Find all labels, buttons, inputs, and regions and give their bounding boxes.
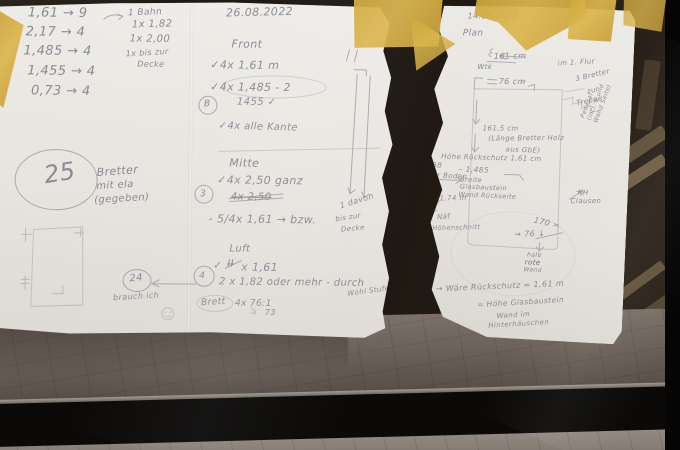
conversion-line: 2,17 → 4 (26, 25, 86, 39)
mitte-line: ✓4x 2,50 ganz (217, 174, 303, 186)
conversion-line: 1,61 → 9 (28, 6, 88, 20)
window-frame-right (665, 0, 680, 450)
front-line: 1455 ✓ (237, 98, 277, 108)
plan-heading: Plan (463, 29, 484, 38)
bahn-line: 1x 1,82 (132, 19, 173, 30)
total-24: 24 (129, 273, 143, 284)
conversion-line: 1,455 → 4 (27, 64, 95, 78)
kh-label: KH (578, 190, 589, 197)
brett-label: Brett (201, 298, 226, 308)
front-line: ✓4x 1,61 m (210, 59, 279, 71)
conversion-line: 0,73 → 4 (31, 84, 91, 98)
bahn-line: Decke (137, 61, 164, 69)
bretter-note: Bretter (96, 164, 138, 178)
mitte-line: - 5/4x 1,61 → bzw. (209, 213, 317, 225)
mitte-marker: 3 (200, 190, 206, 199)
luft-crossed-value: II (227, 259, 234, 269)
naef-note: Höhenschnitt (432, 224, 480, 232)
shop-window-photo: 1,61 → 9 2,17 → 4 1,485 → 4 1,455 → 4 0,… (0, 0, 680, 450)
mitte-heading: Mitte (229, 157, 259, 168)
luft-heading: Luft (229, 244, 250, 254)
measure-174m: 1,74 m (440, 195, 467, 203)
total-25: 25 (42, 158, 77, 187)
luft-check: ✓ (213, 261, 222, 271)
left-note-date: 26.08.2022 (226, 6, 293, 19)
luft-marker: 4 (199, 272, 205, 281)
measure-76: → 76 ↓ (514, 230, 545, 239)
conversion-line: 1,485 → 4 (23, 44, 91, 58)
kh-label: Clausen (571, 198, 602, 205)
front-line: ✓4x 1,485 - 2 (210, 81, 291, 93)
right-note-paper: 14.08.2022 Plan 161 cm Wtk im 1. Flur 76… (417, 2, 635, 345)
front-heading: Front (231, 39, 262, 50)
front-marker: B (204, 100, 211, 109)
luft-line: x 1,61 (241, 262, 278, 273)
naef-note: Näf (437, 213, 451, 221)
brett-result: 73 (265, 309, 276, 317)
wall-label: Wtk (477, 64, 492, 71)
measure-161cm: 161 cm (494, 52, 526, 60)
measure-76cm: 76 cm (499, 78, 526, 86)
mitte-crossed-value: 4x 2,50 (231, 193, 272, 203)
left-note-paper: 1,61 → 9 2,17 → 4 1,485 → 4 1,455 → 4 0,… (0, 0, 396, 338)
bahn-line: 1x 2,00 (130, 34, 171, 44)
plan-length: 161,5 cm (483, 125, 519, 132)
bahn-title: 1 Bahn (128, 8, 162, 18)
luft-line: 2 x 1,82 oder mehr - durch (219, 277, 364, 289)
rote-wand-note: Wand (523, 267, 542, 274)
plan-length-note: (Länge Bretter Holz (488, 135, 564, 143)
